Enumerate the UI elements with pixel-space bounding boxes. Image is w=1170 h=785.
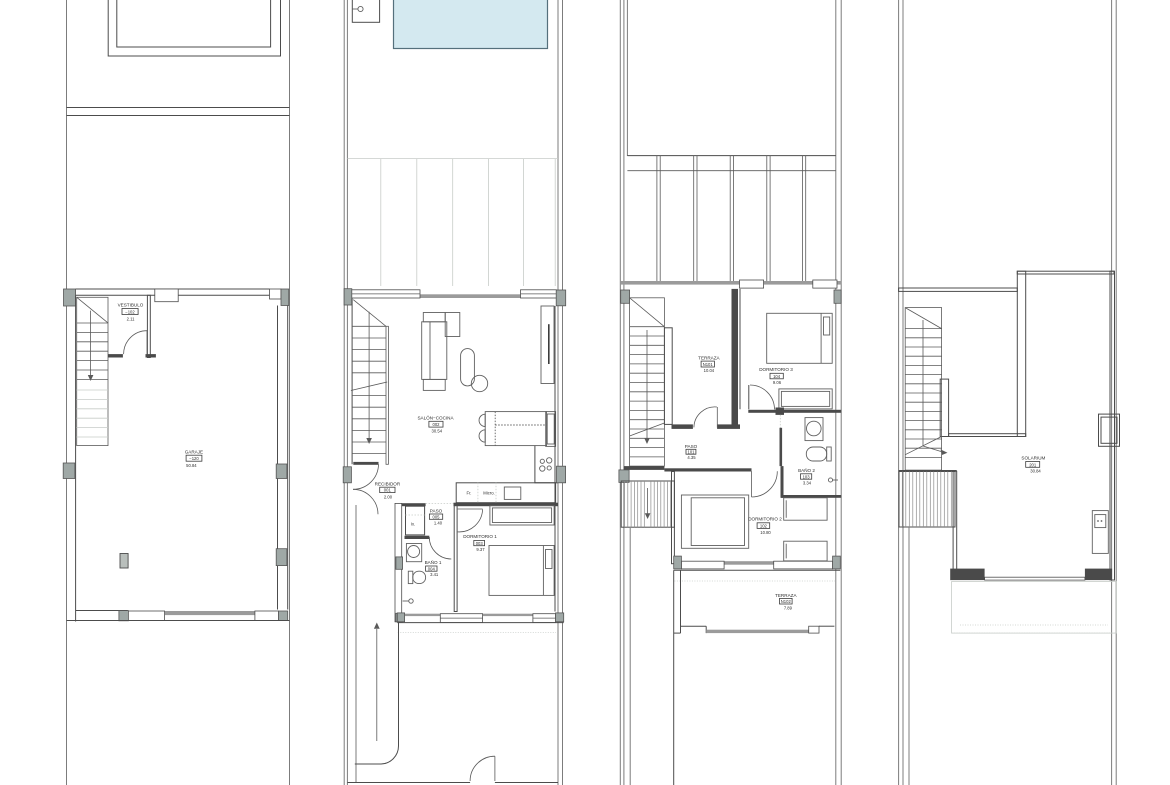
svg-text:50.84: 50.84	[186, 463, 197, 468]
svg-text:003: 003	[476, 541, 484, 546]
svg-text:SOLARIUM: SOLARIUM	[1021, 456, 1045, 461]
svg-text:−120: −120	[189, 456, 199, 461]
svg-text:−102: −102	[125, 309, 135, 314]
svg-text:10.80: 10.80	[760, 530, 771, 535]
svg-text:BAÑO 1: BAÑO 1	[425, 559, 442, 565]
svg-text:GARAJE: GARAJE	[185, 450, 203, 455]
svg-text:103: 103	[803, 474, 811, 479]
svg-text:1.40: 1.40	[434, 521, 443, 526]
svg-text:005: 005	[433, 514, 441, 519]
svg-text:201: 201	[1029, 462, 1037, 467]
svg-text:N101: N101	[703, 362, 714, 367]
svg-text:DORMITORIO 1: DORMITORIO 1	[463, 534, 497, 539]
svg-text:BAÑO 2: BAÑO 2	[798, 467, 815, 473]
svg-text:002: 002	[433, 422, 441, 427]
svg-text:30.54: 30.54	[432, 428, 443, 433]
svg-text:004: 004	[428, 566, 436, 571]
svg-text:3.34: 3.34	[803, 481, 812, 486]
svg-text:4.35: 4.35	[687, 455, 696, 460]
svg-text:101: 101	[688, 449, 696, 454]
svg-text:SALÓN−COCINA: SALÓN−COCINA	[417, 414, 454, 420]
svg-text:104: 104	[773, 374, 781, 379]
svg-text:DORMITORIO 2: DORMITORIO 2	[748, 517, 782, 522]
svg-text:9.37: 9.37	[476, 547, 485, 552]
svg-text:10.04: 10.04	[704, 368, 715, 373]
svg-text:Fr.: Fr.	[467, 491, 472, 496]
svg-text:2.00: 2.00	[384, 494, 393, 499]
svg-text:2.11: 2.11	[127, 317, 136, 322]
svg-text:PASO: PASO	[685, 444, 698, 449]
svg-text:VESTIBULO: VESTIBULO	[118, 303, 144, 308]
svg-text:RECIBIDOR: RECIBIDOR	[375, 481, 401, 486]
svg-text:102: 102	[760, 523, 768, 528]
svg-text:9.06: 9.06	[773, 380, 782, 385]
svg-text:30.84: 30.84	[1030, 469, 1041, 474]
svg-text:TERRAZA: TERRAZA	[775, 593, 797, 598]
svg-text:Micro.: Micro.	[483, 490, 494, 495]
svg-text:Ix.: Ix.	[411, 522, 415, 527]
svg-text:N102: N102	[781, 599, 792, 604]
svg-text:PASO: PASO	[430, 509, 443, 514]
svg-text:DORMITORIO 3: DORMITORIO 3	[759, 367, 793, 372]
svg-text:7.89: 7.89	[784, 606, 793, 611]
svg-text:TERRAZA: TERRAZA	[698, 356, 720, 361]
svg-text:001: 001	[384, 488, 392, 493]
svg-text:3.41: 3.41	[430, 572, 439, 577]
